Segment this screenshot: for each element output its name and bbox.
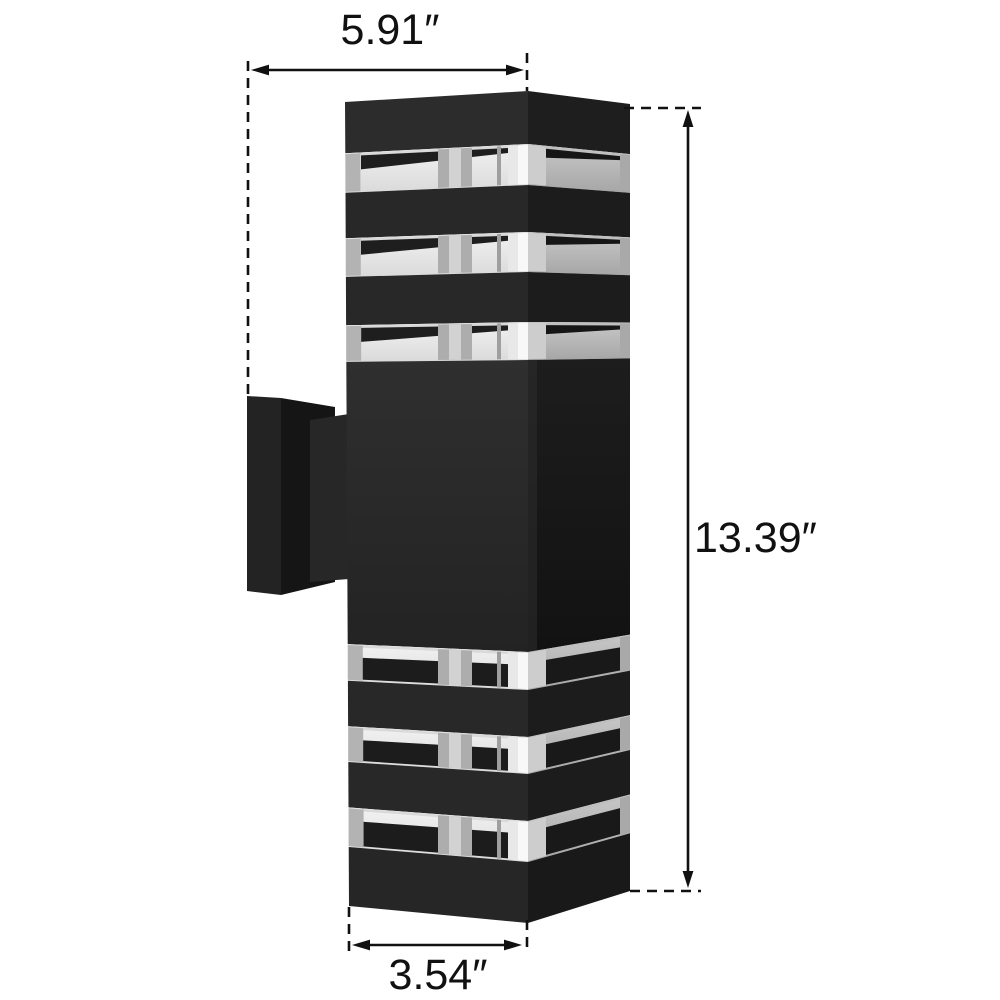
- lamp-black-front: [346, 185, 529, 238]
- glass-corner-post: [346, 326, 361, 361]
- height-dimension: 13.39″: [624, 108, 817, 891]
- glass-corner-post: [346, 239, 361, 276]
- glass-ridge-post-side: [528, 323, 546, 359]
- glass-ridge-post-side: [528, 650, 546, 689]
- depth-dimension: 3.54″: [349, 907, 527, 999]
- glass-ridge-post-side: [528, 817, 546, 861]
- glass-far-post: [620, 324, 630, 358]
- glass-mullion: [497, 736, 501, 771]
- glass-ridge-post-side: [528, 233, 546, 272]
- glass-mullion: [497, 652, 501, 688]
- height-dimension-label: 13.39″: [694, 514, 817, 562]
- glass-corner-post: [349, 808, 364, 847]
- glass-mullion: [497, 820, 501, 859]
- lamp-body-front: [346, 360, 528, 652]
- height-arrowhead-up-icon: [683, 110, 694, 127]
- glass-corner-post: [348, 645, 363, 681]
- glass-ridge-post-highlight: [518, 233, 528, 271]
- glass-center-post-highlight: [449, 324, 461, 360]
- depth-dimension-label: 3.54″: [389, 951, 488, 999]
- lamp-black-side: [528, 185, 630, 237]
- lamp-body-edge-highlight: [528, 360, 537, 652]
- glass-mullion: [497, 234, 501, 272]
- glass-ridge-post-side: [528, 734, 546, 773]
- glass-ridge-post-highlight: [518, 323, 528, 359]
- bracket-wall-plate: [247, 396, 281, 595]
- height-arrowhead-down-icon: [683, 871, 694, 888]
- lamp-illustration: [247, 91, 630, 923]
- glass-ridge-post-highlight: [518, 821, 528, 861]
- glass-ridge-post-side: [528, 145, 546, 185]
- lamp-black-side: [528, 272, 630, 323]
- glass-far-post: [620, 636, 630, 672]
- glass-far-post: [620, 238, 630, 274]
- product-diagram-canvas: 5.91″ 13.39″ 3.54″: [0, 0, 1000, 1000]
- glass-center-post-highlight: [449, 148, 461, 187]
- bracket-arm: [310, 414, 349, 582]
- glass-far-post: [620, 796, 630, 836]
- width-dimension-label: 5.91″: [341, 6, 440, 54]
- glass-corner-post: [348, 727, 363, 762]
- lamp-body-side: [528, 358, 630, 652]
- depth-arrowhead-left-icon: [352, 940, 370, 951]
- lamp-cap-side: [528, 91, 630, 154]
- glass-mullion: [497, 324, 501, 360]
- lamp-cap-front: [345, 91, 528, 153]
- glass-center-post-highlight: [449, 235, 461, 273]
- glass-center-post-highlight: [449, 816, 461, 855]
- width-arrowhead-left-icon: [251, 65, 269, 76]
- glass-mullion: [497, 146, 501, 185]
- glass-far-post: [620, 716, 630, 751]
- glass-ridge-post-highlight: [518, 653, 528, 689]
- glass-center-post-highlight: [449, 650, 461, 686]
- lamp-black-front: [346, 272, 528, 325]
- glass-center-post-highlight: [449, 733, 461, 768]
- glass-far-post: [620, 154, 630, 192]
- width-arrowhead-right-icon: [506, 65, 524, 76]
- diagram-svg: 5.91″ 13.39″ 3.54″: [0, 0, 1000, 1000]
- glass-corner-post: [345, 153, 360, 191]
- depth-arrowhead-right-icon: [504, 940, 522, 951]
- glass-ridge-post-highlight: [518, 145, 528, 184]
- glass-ridge-post-highlight: [518, 737, 528, 773]
